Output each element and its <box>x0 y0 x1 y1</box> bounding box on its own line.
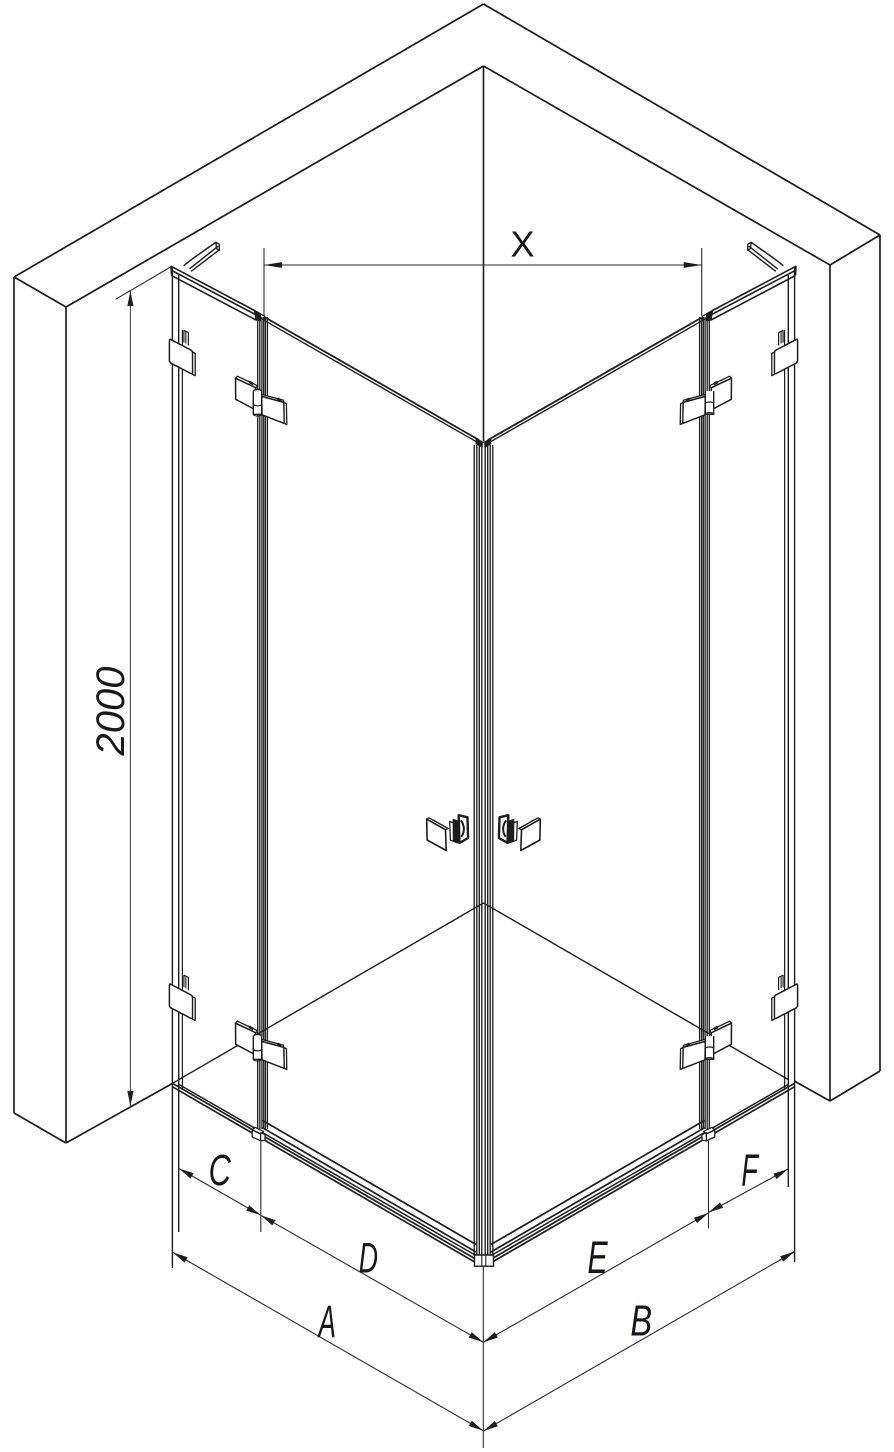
svg-text:F: F <box>741 1144 759 1195</box>
svg-text:A: A <box>317 1297 336 1347</box>
svg-text:E: E <box>587 1233 607 1284</box>
svg-text:C: C <box>209 1147 232 1196</box>
svg-text:2000: 2000 <box>89 667 133 757</box>
svg-text:X: X <box>510 224 534 265</box>
svg-text:B: B <box>630 1297 652 1346</box>
svg-text:D: D <box>359 1234 378 1282</box>
